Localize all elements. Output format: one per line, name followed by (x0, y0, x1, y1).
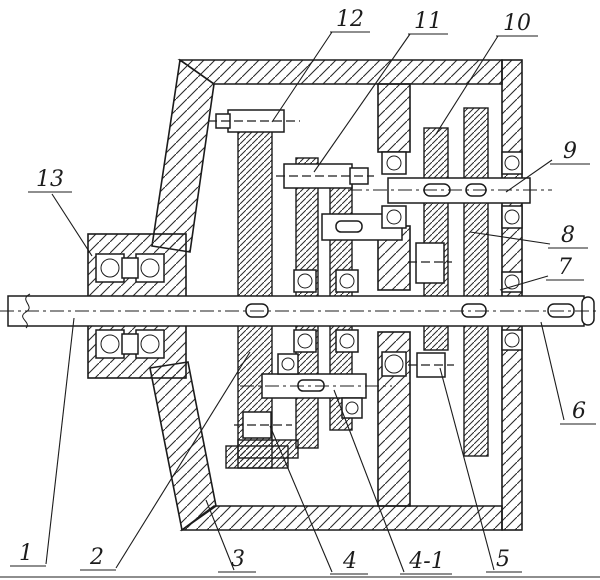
cross-section-figure: 1 2 3 4 4-1 5 6 (0, 0, 600, 580)
part-label-7-text: 7 (558, 255, 572, 280)
part-label-9-text: 9 (563, 139, 577, 164)
intermediate-keyway (336, 221, 362, 232)
part-label-12-text: 12 (336, 7, 364, 32)
part-label-6: 6 (541, 322, 596, 424)
housing-top-wall (180, 60, 502, 84)
part-label-4-1-text: 4-1 (408, 549, 444, 574)
part-label-2-text: 2 (89, 545, 104, 570)
part-label-10-text: 10 (503, 11, 531, 36)
drawing-sheet: 1 2 3 4 4-1 5 6 (0, 0, 600, 580)
housing-right-wall (502, 60, 522, 530)
part-label-5-text: 5 (496, 547, 510, 572)
main-shaft-keyway-1 (246, 304, 268, 317)
partition-wall-upper (378, 84, 410, 152)
part-label-13: 13 (28, 167, 92, 256)
housing-bottom-wall (182, 506, 502, 530)
housing-left-lower-cone (150, 362, 216, 530)
part-label-6-text: 6 (572, 399, 586, 424)
right-chamber-gear-8 (464, 108, 488, 456)
part-label-1: 1 (10, 318, 74, 566)
main-shaft-keyway-3 (548, 304, 574, 317)
part-label-13-text: 13 (36, 167, 64, 192)
part-label-3-text: 3 (231, 547, 245, 572)
part-label-1-text: 1 (19, 541, 33, 566)
lower-gear-rim (238, 440, 298, 458)
part-label-4-text: 4 (342, 549, 357, 574)
housing-left-upper-cone (152, 60, 214, 252)
lower-shaft-keyway (298, 380, 324, 391)
shifter-block-upper (416, 243, 444, 283)
part-label-11-text: 11 (414, 9, 442, 34)
part-label-8-text: 8 (561, 223, 575, 248)
main-shaft-keyway-2 (462, 304, 486, 317)
